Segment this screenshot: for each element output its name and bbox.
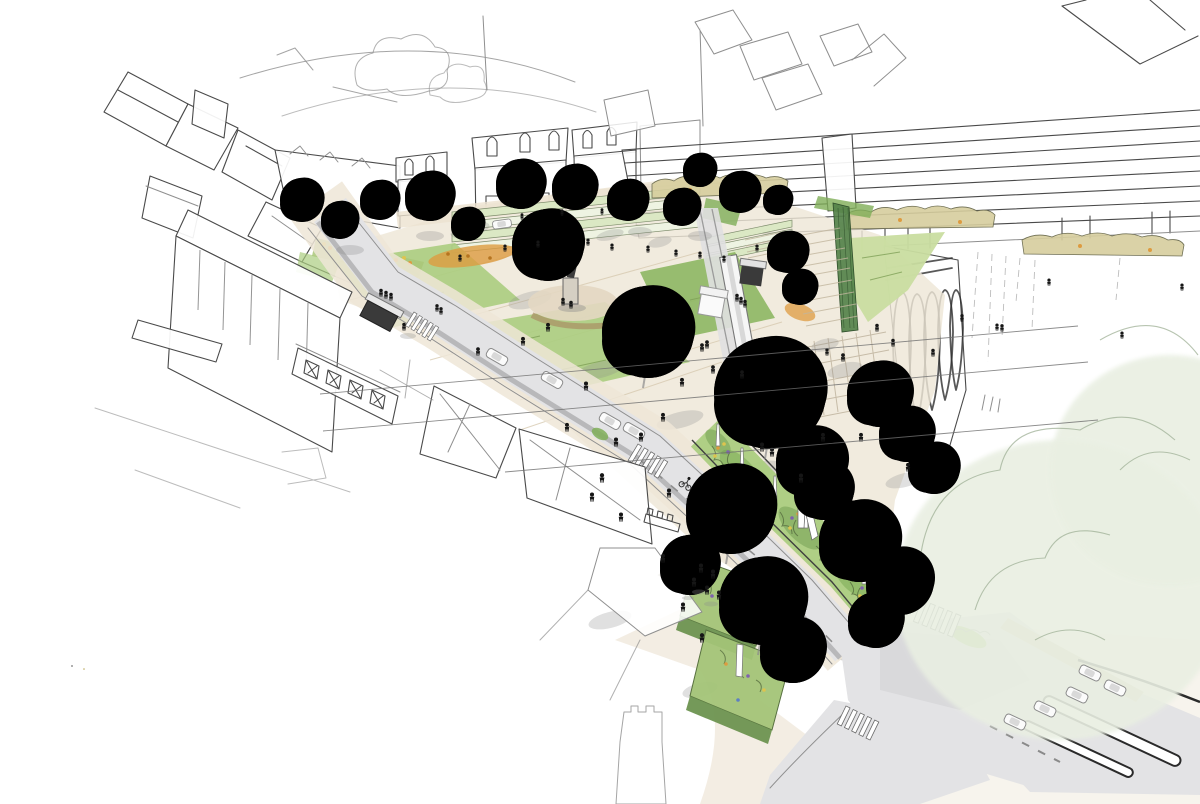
masterplan-sketch: Aerial perspective sketch of a town-cent… xyxy=(0,0,1200,804)
sketch-canvas: Aerial perspective sketch of a town-cent… xyxy=(0,0,1200,804)
